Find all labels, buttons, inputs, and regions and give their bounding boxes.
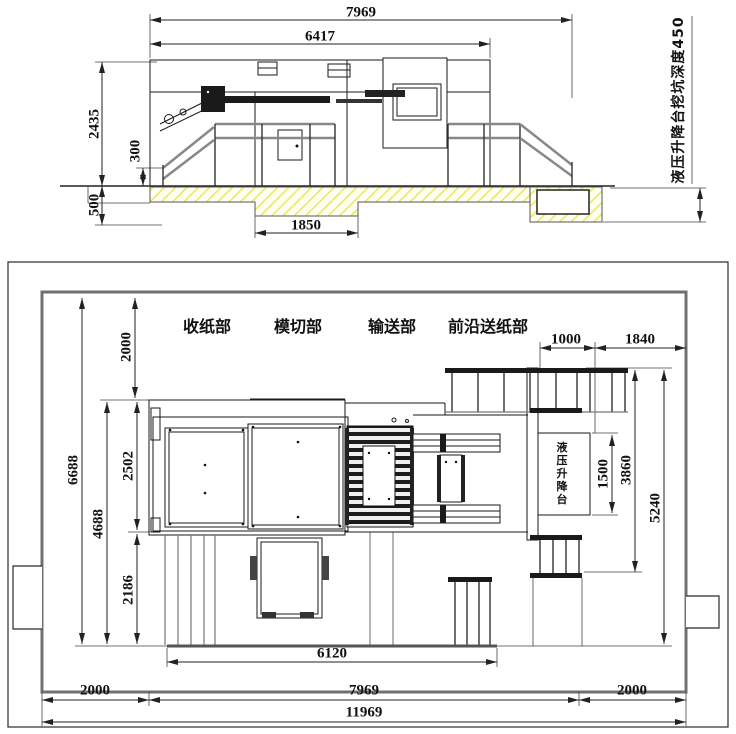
front-feed-section xyxy=(413,434,500,523)
conveyor-bar xyxy=(214,96,330,103)
plan-top-margin-label: 2000 xyxy=(119,332,136,362)
plan-right-margin-label: 2000 xyxy=(617,683,647,700)
elev-base-height-label: 300 xyxy=(128,140,145,163)
plan-lift-length-label: 1500 xyxy=(596,459,613,489)
section-label-die-cutting: 模切部 xyxy=(274,313,322,337)
plan-feed-width-label: 1000 xyxy=(551,332,581,349)
lift-platform-label: 液压升降台 xyxy=(553,442,569,507)
drawing-linework xyxy=(0,0,736,734)
machine-plan xyxy=(149,368,628,646)
section-label-transfer: 输送部 xyxy=(368,313,416,337)
section-label-front-feed: 前沿送纸部 xyxy=(448,313,528,337)
machine-right-wall xyxy=(527,368,538,540)
foundation-hatch xyxy=(150,187,535,216)
elev-foundation-depth-label: 500 xyxy=(87,194,104,217)
plan-overall-width-label: 11969 xyxy=(346,705,383,722)
plan-left-margin-label: 2000 xyxy=(80,683,110,700)
lift-pit xyxy=(537,190,589,214)
left-stair-lines xyxy=(165,535,215,645)
machine-elevation xyxy=(150,58,490,186)
elev-body-width-label: 6417 xyxy=(305,29,335,46)
right-wall-recess xyxy=(686,596,719,628)
foundation xyxy=(60,186,615,222)
plan-feed-depth-label: 3860 xyxy=(619,455,636,485)
elev-center-pit-width-label: 1850 xyxy=(291,218,321,235)
delivery-section xyxy=(165,428,248,527)
plan-machine-depth-label: 4688 xyxy=(91,509,108,539)
die-cut-section xyxy=(248,424,343,529)
guard-railings xyxy=(163,124,572,186)
plan-machine-width-label: 7969 xyxy=(349,683,379,700)
plan-lower-section-label: 2186 xyxy=(121,575,138,605)
section-label-delivery: 收纸部 xyxy=(183,313,231,337)
elevation-view xyxy=(60,14,706,238)
machine-body-outline xyxy=(149,400,345,535)
elev-overall-width-label: 7969 xyxy=(346,5,376,22)
plan-zone-height-label: 6688 xyxy=(66,455,83,485)
installation-drawing: 7969 6417 2435 300 500 1850 液压升降台挖坑深度450… xyxy=(0,0,736,734)
die-cart-platform xyxy=(250,538,329,618)
plan-foundation-width-label: 6120 xyxy=(317,646,347,663)
lift-pit-depth-note: 液压升降台挖坑深度450 xyxy=(668,16,688,183)
plan-upper-section-label: 2502 xyxy=(121,451,138,481)
fastener-dots xyxy=(169,426,342,528)
plan-right-offset-label: 1840 xyxy=(625,332,655,349)
elev-height-label: 2435 xyxy=(87,109,104,139)
left-wall-recess xyxy=(13,566,42,629)
plan-right-depth-label: 5240 xyxy=(648,493,665,523)
